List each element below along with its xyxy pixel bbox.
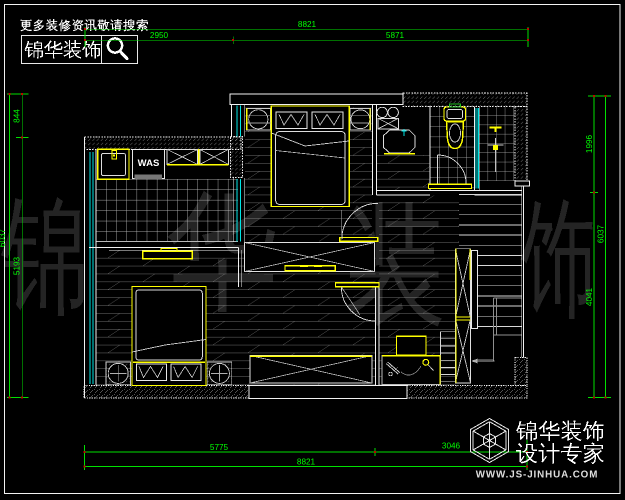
svg-text:1996: 1996 [585, 134, 594, 153]
svg-text:8821: 8821 [297, 458, 316, 467]
svg-text:5871: 5871 [386, 31, 405, 40]
svg-text:5775: 5775 [210, 443, 229, 452]
svg-text:844: 844 [13, 109, 22, 123]
svg-text:4041: 4041 [585, 287, 594, 306]
svg-text:6037: 6037 [596, 224, 605, 243]
svg-text:5193: 5193 [13, 256, 22, 275]
svg-text:3046: 3046 [442, 441, 461, 450]
svg-text:8821: 8821 [298, 20, 317, 29]
svg-text:WWW.JS-JINHUA.COM: WWW.JS-JINHUA.COM [476, 470, 599, 481]
svg-text:2950: 2950 [150, 31, 169, 40]
svg-text:6037: 6037 [0, 228, 7, 247]
svg-text:WAS: WAS [138, 158, 160, 169]
